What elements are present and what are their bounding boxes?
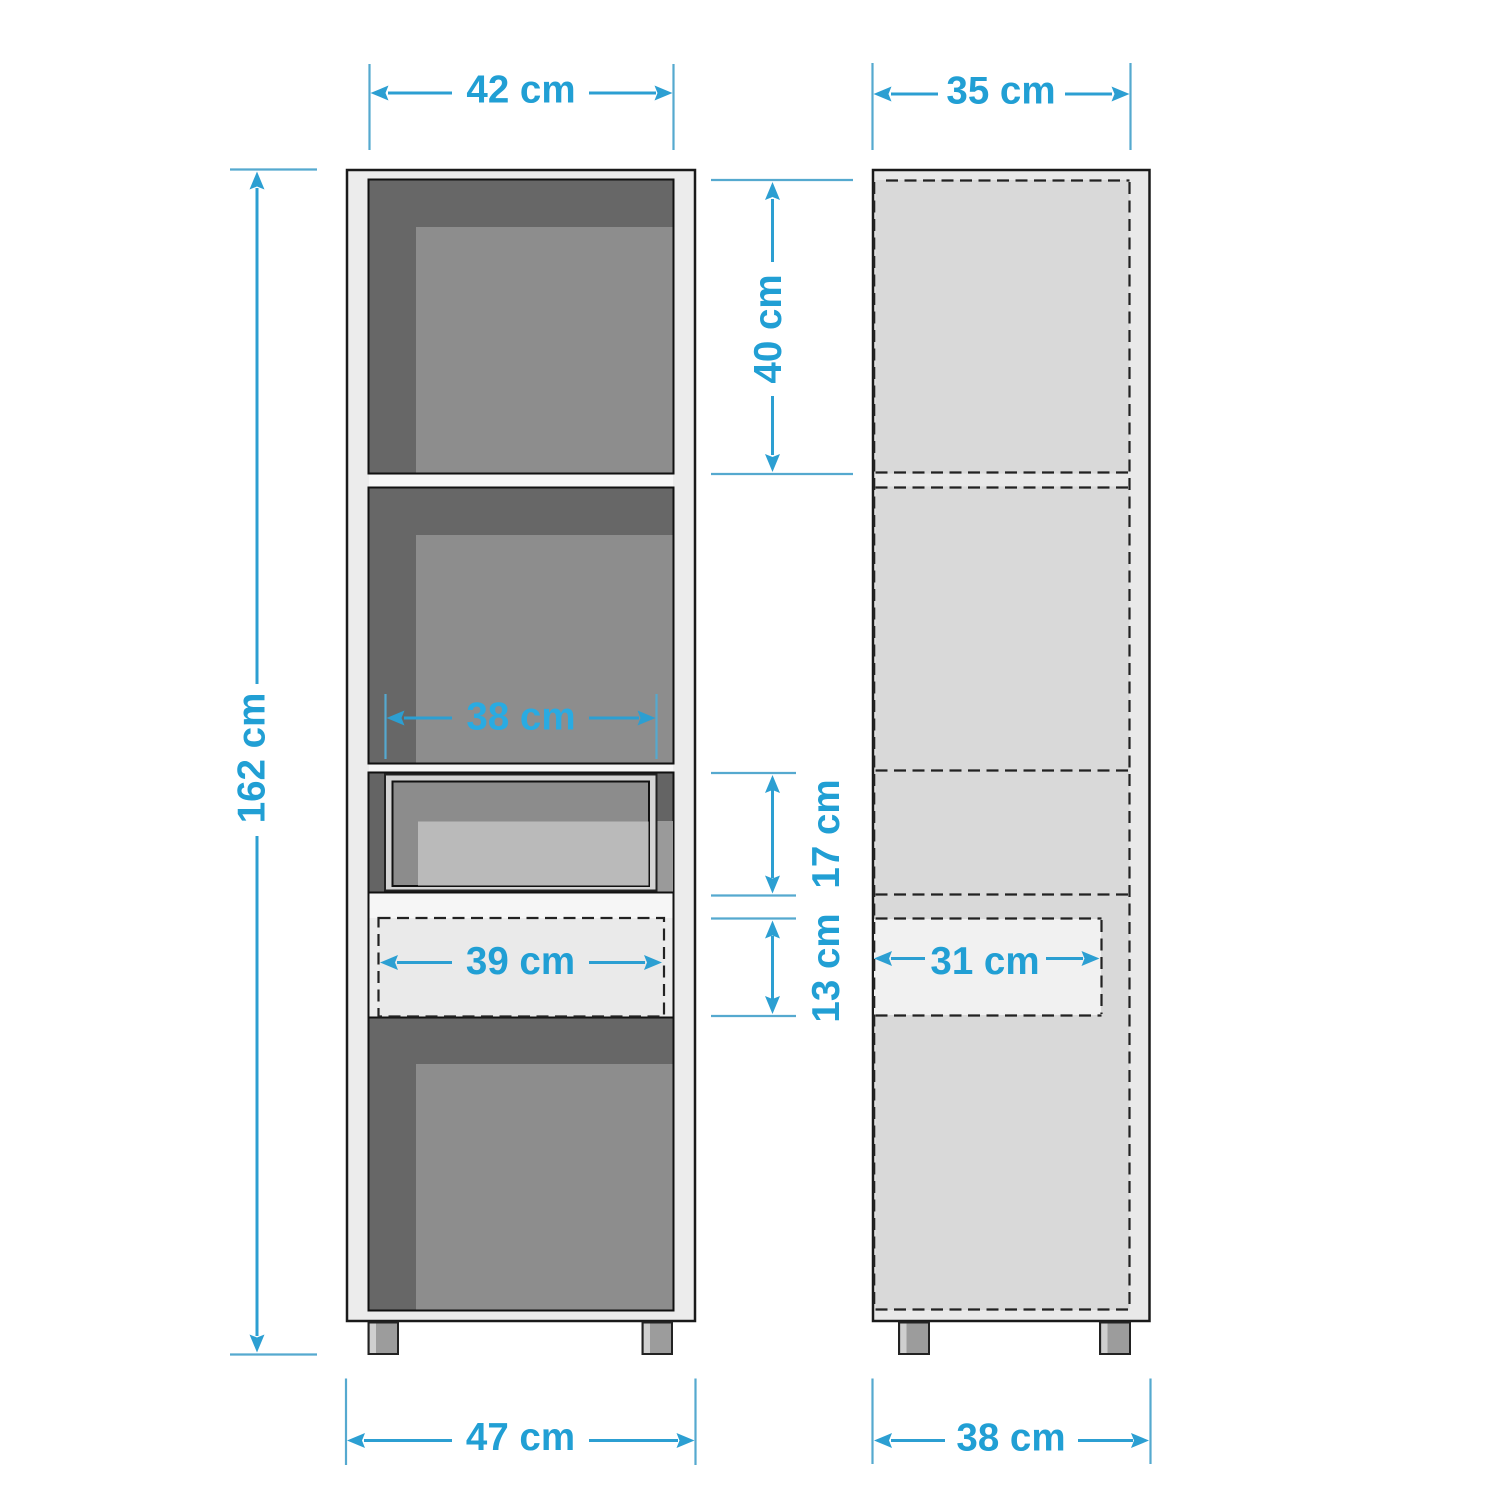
svg-text:38 cm: 38 cm [466, 696, 575, 739]
svg-text:38 cm: 38 cm [956, 1417, 1065, 1460]
svg-text:31 cm: 31 cm [930, 940, 1039, 983]
svg-text:40 cm: 40 cm [747, 274, 790, 383]
svg-text:39 cm: 39 cm [466, 940, 575, 983]
svg-text:17 cm: 17 cm [805, 779, 848, 888]
svg-text:42 cm: 42 cm [466, 69, 575, 112]
svg-text:162 cm: 162 cm [231, 693, 274, 824]
svg-text:35 cm: 35 cm [946, 70, 1055, 113]
svg-text:13 cm: 13 cm [805, 913, 848, 1022]
svg-text:47 cm: 47 cm [466, 1416, 575, 1459]
